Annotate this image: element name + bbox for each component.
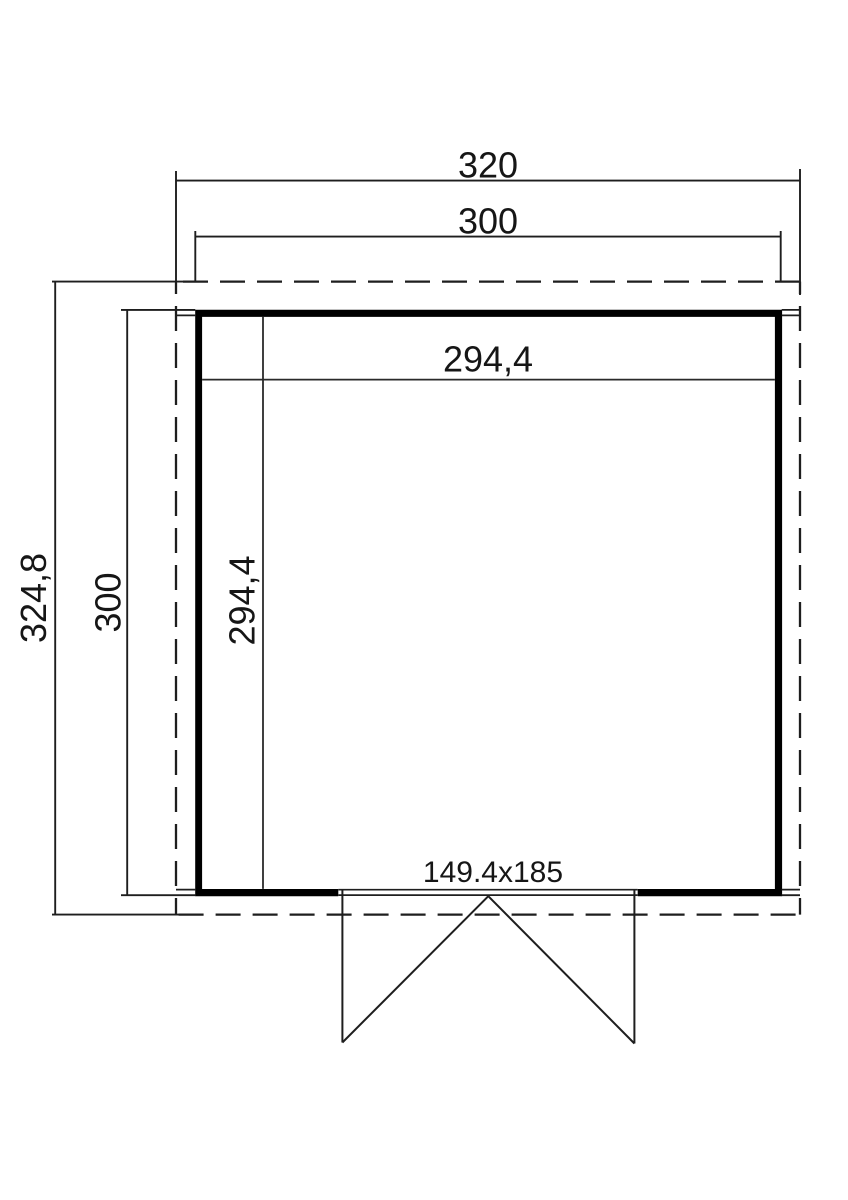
svg-text:300: 300	[88, 572, 129, 632]
svg-text:300: 300	[458, 201, 518, 242]
svg-text:294,4: 294,4	[222, 555, 263, 645]
svg-text:324,8: 324,8	[13, 553, 54, 643]
svg-text:320: 320	[458, 145, 518, 186]
svg-text:294,4: 294,4	[443, 338, 533, 379]
svg-text:149.4x185: 149.4x185	[423, 856, 563, 889]
